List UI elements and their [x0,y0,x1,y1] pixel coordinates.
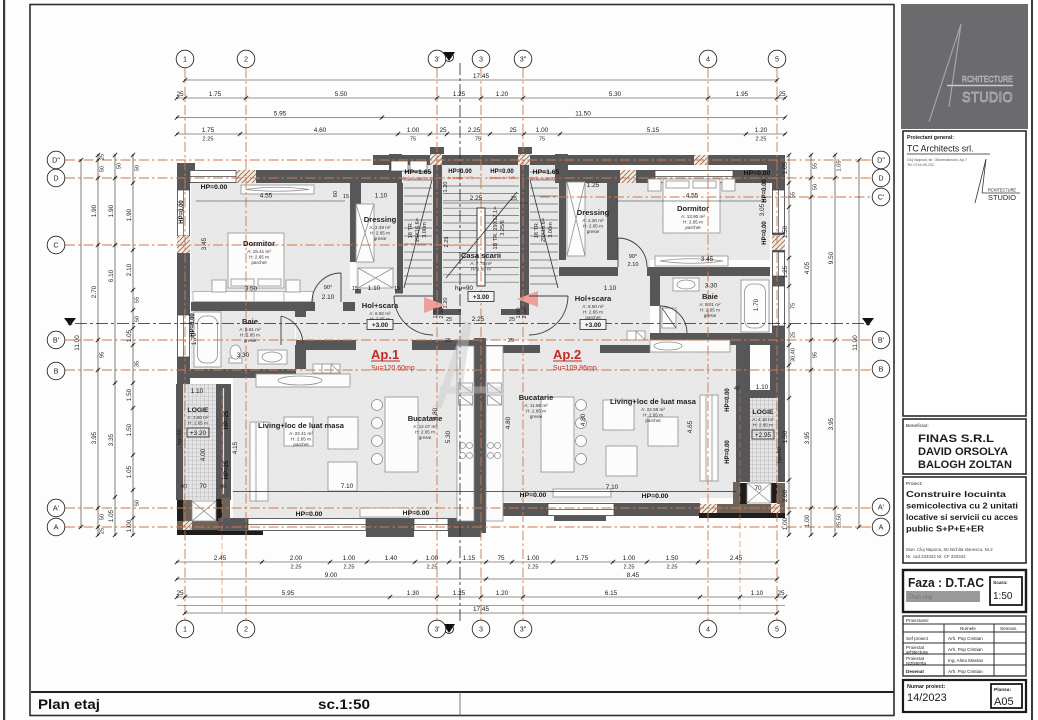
svg-text:HP=1.65: HP=1.65 [405,169,432,176]
svg-text:3': 3' [434,55,440,64]
svg-text:A: 11.86 m²: A: 11.86 m² [524,403,548,408]
svg-text:Baie: Baie [702,292,718,301]
svg-text:6.15: 6.15 [605,590,618,597]
svg-text:DAVID ORSOLYA: DAVID ORSOLYA [918,446,1008,458]
svg-text:rezistenta: rezistenta [906,661,926,666]
svg-text:4.65: 4.65 [687,420,694,433]
svg-text:60: 60 [333,191,339,197]
svg-text:50: 50 [100,166,106,172]
svg-text:2: 2 [244,625,248,634]
svg-text:1:50: 1:50 [993,591,1013,602]
svg-text:55: 55 [813,163,819,169]
svg-text:Plansa:: Plansa: [994,687,1011,693]
svg-text:1: 1 [183,625,187,634]
svg-text:3.30: 3.30 [237,352,250,359]
svg-text:25: 25 [100,528,106,534]
svg-text:H: 2.65 m: H: 2.65 m [526,409,546,414]
svg-text:9.00: 9.00 [325,572,338,579]
svg-text:3": 3" [520,55,527,64]
svg-text:HP=0.00: HP=0.00 [448,169,472,175]
svg-text:1.10: 1.10 [751,590,764,597]
svg-text:1.20: 1.20 [755,127,768,134]
svg-text:5: 5 [775,625,779,634]
svg-text:25: 25 [100,154,106,160]
svg-text:1.10: 1.10 [191,388,204,395]
svg-text:2.25: 2.25 [667,564,678,570]
svg-text:Bucatarie: Bucatarie [408,414,443,423]
svg-text:4.55: 4.55 [686,193,699,200]
svg-text:A05: A05 [994,696,1014,708]
svg-text:3': 3' [434,625,440,634]
svg-text:3.35: 3.35 [108,433,115,446]
svg-text:30,40: 30,40 [791,348,797,362]
svg-text:55: 55 [791,192,797,198]
svg-text:2.10: 2.10 [322,294,335,301]
svg-text:5.95: 5.95 [282,590,295,597]
svg-text:Arh. Pop Cristian: Arh. Pop Cristian [948,636,983,641]
svg-text:Numar proiect:: Numar proiect: [907,684,946,690]
svg-text:Beneficiar:: Beneficiar: [906,423,929,429]
svg-text:parchet: parchet [293,442,309,447]
svg-text:D": D" [52,156,60,165]
svg-text:HP=0.00: HP=0.00 [201,184,228,191]
svg-text:3.00m: 3.00m [548,222,554,238]
svg-text:50: 50 [813,184,819,190]
svg-text:25: 25 [777,590,785,597]
svg-text:1.05: 1.05 [126,329,133,342]
svg-text:14/2023: 14/2023 [907,692,947,704]
svg-text:Desenat: Desenat [906,669,924,674]
svg-text:2.00: 2.00 [290,555,303,562]
svg-text:Arh. Pop Cristian: Arh. Pop Cristian [948,669,983,674]
svg-text:A': A' [878,503,885,512]
svg-text:1.00: 1.00 [407,127,420,134]
svg-text:A: 2.30 m²: A: 2.30 m² [582,218,604,223]
svg-text:50: 50 [135,316,141,322]
svg-text:1.15: 1.15 [463,555,476,562]
svg-text:Su=109,86mp: Su=109,86mp [553,365,597,372]
svg-text:18 TR.: 18 TR. [408,221,414,238]
svg-text:25: 25 [511,196,517,202]
svg-text:2.50: 2.50 [522,308,528,319]
svg-text:H: 2.65 m: H: 2.65 m [370,231,390,236]
svg-text:1.90: 1.90 [91,204,98,217]
svg-text:B: B [879,365,884,374]
svg-text:55: 55 [135,297,141,303]
svg-text:HP=0.00: HP=0.00 [744,170,771,177]
svg-text:1.10: 1.10 [375,193,388,200]
svg-text:HP=0.00: HP=0.00 [725,440,731,464]
svg-text:A: 5.01 m²: A: 5.01 m² [699,302,721,307]
svg-text:29X16.6=: 29X16.6= [541,218,547,242]
svg-text:75: 75 [475,136,481,142]
svg-text:A: 5.61 m²: A: 5.61 m² [239,327,261,332]
svg-text:3.95: 3.95 [828,417,835,430]
svg-text:4.60: 4.60 [314,127,327,134]
svg-text:7.10: 7.10 [341,483,354,490]
svg-text:A: 8.50 m²: A: 8.50 m² [582,304,604,309]
svg-text:25: 25 [439,127,447,134]
svg-text:A: 7.75 m²: A: 7.75 m² [470,261,492,266]
svg-text:75: 75 [791,303,797,309]
svg-text:Dormitor: Dormitor [243,239,275,248]
svg-text:LOGIE: LOGIE [752,409,774,416]
svg-text:Proiectanti:: Proiectanti: [906,618,929,623]
svg-text:1.20: 1.20 [443,182,449,193]
svg-text:2.45: 2.45 [214,555,227,562]
svg-text:FINAS S.R.L: FINAS S.R.L [918,433,994,445]
svg-text:H: 2.65 m: H: 2.65 m [240,333,260,338]
svg-text:gresie: gresie [530,414,543,419]
svg-text:H: 2.65 m: H: 2.65 m [291,437,311,442]
svg-text:8.45: 8.45 [627,572,640,579]
svg-text:Bucatarie: Bucatarie [519,393,554,402]
svg-text:2.25: 2.25 [427,564,438,570]
svg-text:+3.00: +3.00 [585,322,602,329]
svg-text:1.75: 1.75 [202,127,215,134]
svg-text:25,50: 25,50 [837,514,843,528]
svg-text:1.20: 1.20 [496,590,509,597]
svg-text:4: 4 [706,625,710,634]
svg-text:50: 50 [100,514,106,520]
svg-text:sc.1:50: sc.1:50 [318,696,370,712]
svg-text:Mun. Cluj Napoca, Str.Nichita: Mun. Cluj Napoca, Str.Nichita stanescu, … [906,547,993,552]
svg-text:gresie: gresie [244,338,257,343]
svg-text:HP=0.00: HP=0.00 [296,511,323,518]
svg-text:H: 2.65 m: H: 2.65 m [753,423,773,428]
svg-text:Faza : D.T.AC: Faza : D.T.AC [908,576,984,590]
svg-text:HP=0.00: HP=0.00 [179,200,185,224]
svg-text:Numele: Numele [960,626,976,631]
svg-text:25: 25 [509,127,517,134]
svg-text:1.50: 1.50 [782,430,789,443]
svg-text:2.25: 2.25 [470,195,483,202]
svg-text:Living+loc de luat masa: Living+loc de luat masa [610,397,697,406]
svg-text:11.00: 11.00 [852,335,859,351]
svg-text:Proiectant general:: Proiectant general: [907,135,954,141]
svg-text:Dressing: Dressing [577,208,610,217]
svg-text:gresie: gresie [704,313,717,318]
svg-text:2.10: 2.10 [628,262,639,268]
svg-text:1.00: 1.00 [782,517,789,530]
svg-text:Ap.2: Ap.2 [553,347,581,362]
svg-text:B: B [54,367,59,376]
svg-text:H: 2.65 m: H: 2.65 m [583,310,603,315]
svg-text:Hol+scara: Hol+scara [575,294,612,303]
svg-text:1B TR. 29X17.1=: 1B TR. 29X17.1= [493,207,499,250]
svg-text:STUDIO: STUDIO [962,89,1013,106]
svg-text:1.00: 1.00 [343,555,356,562]
svg-text:2.70: 2.70 [91,285,98,298]
svg-text:1.50: 1.50 [126,423,133,436]
svg-text:HP=0.00: HP=0.00 [403,510,430,517]
svg-text:6.10: 6.10 [108,269,115,282]
svg-text:HP=0.00: HP=0.00 [725,388,731,412]
svg-text:2: 2 [244,55,248,64]
svg-text:+3.00: +3.00 [473,294,490,301]
svg-text:17.45: 17.45 [473,606,489,613]
svg-text:3.95: 3.95 [804,431,811,444]
svg-text:parchet: parchet [685,225,701,230]
svg-text:15: 15 [352,286,358,292]
svg-text:18 TR.: 18 TR. [534,221,540,238]
svg-text:95: 95 [813,352,819,358]
svg-text:4.05: 4.05 [804,261,811,274]
svg-text:Baie: Baie [242,317,258,326]
svg-text:5.15: 5.15 [647,127,660,134]
svg-text:4.55: 4.55 [260,193,273,200]
svg-text:90°: 90° [629,254,637,260]
svg-text:4.00: 4.00 [200,448,207,461]
svg-text:1.25: 1.25 [587,182,600,189]
svg-text:de la cota +3.25: de la cota +3.25 [402,176,435,181]
svg-text:3.95: 3.95 [91,431,98,444]
svg-text:A: 15.41 m²: A: 15.41 m² [247,249,271,254]
svg-text:2.10: 2.10 [126,263,133,276]
svg-text:3.25/6: 3.25/6 [500,220,506,236]
svg-text:de la cota +3.25: de la cota +3.25 [489,176,515,180]
svg-text:+3.00: +3.00 [372,322,389,329]
svg-text:3.00m: 3.00m [422,222,428,238]
svg-text:75: 75 [410,136,416,142]
svg-text:LOGIE: LOGIE [187,407,209,414]
svg-text:2.25: 2.25 [468,127,481,134]
svg-text:D: D [53,174,58,183]
svg-text:3.05: 3.05 [759,203,766,216]
svg-text:7.10: 7.10 [606,484,619,491]
svg-text:3: 3 [479,55,483,64]
svg-text:H: 2.65 m: H: 2.65 m [683,220,703,225]
svg-text:Tel: 0744-95-232: Tel: 0744-95-232 [907,163,934,167]
svg-text:Ing. Alina Mastan: Ing. Alina Mastan [948,658,984,663]
svg-text:+3.20: +3.20 [190,430,207,437]
svg-text:Dormitor: Dormitor [677,204,709,213]
svg-text:HP=25: HP=25 [224,460,230,479]
svg-text:arhitectura: arhitectura [906,650,928,655]
svg-text:hp=90: hp=90 [177,429,183,445]
svg-text:A: 22.41 m²: A: 22.41 m² [289,431,313,436]
svg-text:3.30: 3.30 [705,283,718,290]
svg-text:Living+loc de luat masa: Living+loc de luat masa [258,421,345,430]
svg-text:15: 15 [343,194,349,200]
svg-text:11.50: 11.50 [575,111,591,118]
svg-text:1.00: 1.00 [126,519,133,532]
svg-text:25: 25 [791,332,797,338]
svg-text:Scara:: Scara: [993,580,1008,586]
svg-text:1.00: 1.00 [623,555,636,562]
svg-text:40: 40 [220,484,226,490]
svg-text:HP=25: HP=25 [224,410,230,429]
svg-text:C: C [53,241,58,250]
svg-text:3: 3 [479,625,483,634]
svg-text:Plan etaj: Plan etaj [909,595,932,601]
svg-text:A: 4.10 m²: A: 4.10 m² [752,417,774,422]
svg-text:3.50: 3.50 [245,286,258,293]
svg-text:Proiect:: Proiect: [906,481,922,487]
svg-text:1.05: 1.05 [108,509,115,522]
svg-text:35: 35 [135,361,141,367]
svg-text:5.50: 5.50 [335,91,348,98]
svg-text:3.45: 3.45 [701,256,714,263]
svg-text:HP=0.00: HP=0.00 [520,492,547,499]
svg-text:1: 1 [183,55,187,64]
svg-text:2.25: 2.25 [528,564,539,570]
svg-text:HP=0.00: HP=0.00 [762,221,768,245]
svg-text:Su=120,60mp: Su=120,60mp [371,365,415,372]
svg-text:RCHITECTURE: RCHITECTURE [988,188,1016,193]
svg-text:H: 2.65 m: H: 2.65 m [415,430,435,435]
svg-text:BALOGH ZOLTAN: BALOGH ZOLTAN [918,459,1012,471]
svg-text:semicolectiva cu 2 unitati: semicolectiva cu 2 unitati [906,501,1018,511]
svg-text:5: 5 [775,55,779,64]
svg-text:Sef proiect: Sef proiect [906,636,929,641]
svg-text:2.25: 2.25 [291,564,302,570]
svg-text:Casa scarii: Casa scarii [461,251,501,260]
svg-text:D": D" [877,156,885,165]
svg-text:A: 2.49 m²: A: 2.49 m² [369,225,391,230]
svg-text:4: 4 [706,55,710,64]
svg-text:1.40: 1.40 [385,555,398,562]
svg-text:2.25: 2.25 [444,237,450,248]
svg-text:1.30: 1.30 [407,590,420,597]
svg-text:17.45: 17.45 [473,73,489,80]
svg-text:25: 25 [445,338,451,344]
svg-text:4.15: 4.15 [232,441,239,454]
svg-text:HP=0.00: HP=0.00 [762,179,768,203]
svg-text:hp=90: hp=90 [777,447,783,463]
svg-text:Construire locuinta: Construire locuinta [906,489,1006,499]
svg-text:90°: 90° [324,285,332,291]
svg-text:2.25: 2.25 [472,316,485,323]
svg-text:1.00: 1.00 [804,514,811,527]
svg-text:75: 75 [497,555,505,562]
svg-text:40: 40 [734,386,740,392]
svg-text:Cluj Napoca, str. Observatorul: Cluj Napoca, str. Observatorului, Ap.7 [907,158,967,162]
svg-text:9.50: 9.50 [828,251,835,264]
svg-text:1.00: 1.00 [536,127,549,134]
svg-text:D: D [878,174,883,183]
svg-text:H/:2.65 m: H/:2.65 m [471,267,491,272]
svg-text:HP=1.65: HP=1.65 [533,169,560,176]
svg-text:A: 6.92 m²: A: 6.92 m² [369,311,391,316]
svg-text:1.20: 1.20 [443,298,449,309]
svg-text:5.30: 5.30 [609,91,622,98]
svg-text:parchet: parchet [645,418,661,423]
svg-text:2.25: 2.25 [624,564,635,570]
svg-text:50: 50 [135,500,141,506]
svg-text:70: 70 [199,483,207,490]
svg-text:parchet: parchet [251,260,267,265]
svg-text:2.25: 2.25 [344,564,355,570]
svg-text:25: 25 [778,91,786,98]
svg-text:25: 25 [176,590,184,597]
svg-text:1.25: 1.25 [453,590,466,597]
svg-text:H: 2.65 m: H: 2.65 m [249,255,269,260]
svg-text:HP=0.00: HP=0.00 [490,169,514,175]
svg-text:Ap.1: Ap.1 [371,347,399,362]
svg-text:2.00: 2.00 [782,489,789,502]
svg-text:3.45: 3.45 [201,237,208,250]
svg-text:2.25: 2.25 [756,136,767,142]
svg-text:gresie: gresie [587,229,600,234]
svg-text:B': B' [878,336,885,345]
svg-text:A: 3.60 m²: A: 3.60 m² [187,415,209,420]
svg-text:STUDIO: STUDIO [988,195,1017,202]
svg-text:1.90: 1.90 [126,208,133,221]
svg-text:A': A' [53,504,60,513]
svg-text:70: 70 [754,485,762,492]
svg-text:Plan etaj: Plan etaj [38,696,100,712]
svg-text:A: A [866,318,871,327]
svg-text:1.05: 1.05 [126,465,133,478]
svg-text:25: 25 [509,317,515,323]
svg-text:1.50: 1.50 [666,555,679,562]
svg-text:11.00: 11.00 [74,335,81,351]
svg-text:50: 50 [135,165,141,171]
svg-text:1.00: 1.00 [426,555,439,562]
svg-text:H: 2.65 m: H: 2.65 m [700,308,720,313]
svg-text:hp=90: hp=90 [455,285,473,292]
svg-text:1.90: 1.90 [108,204,115,217]
svg-text:A: A [68,318,73,327]
svg-text:Nr. cad.333342 Nr. CF 333342: Nr. cad.333342 Nr. CF 333342 [906,554,966,559]
svg-text:C': C' [878,193,885,202]
svg-text:H: 2.65 m: H: 2.65 m [643,413,663,418]
svg-text:29X16.6=: 29X16.6= [415,218,421,242]
svg-text:de la cota +3.25: de la cota +3.25 [530,176,563,181]
svg-text:1.50: 1.50 [126,388,133,401]
svg-text:1.10: 1.10 [368,285,381,292]
svg-text:1.75: 1.75 [209,91,222,98]
svg-text:Arh. Pop Cristian: Arh. Pop Cristian [948,647,983,652]
svg-text:HP=0.00: HP=0.00 [642,493,669,500]
svg-text:15: 15 [394,286,400,292]
svg-text:1.75: 1.75 [576,555,589,562]
svg-text:1.25: 1.25 [453,91,466,98]
svg-text:gresie: gresie [374,236,387,241]
svg-text:95: 95 [100,352,106,358]
svg-text:+2.95: +2.95 [755,432,772,439]
svg-text:1.05: 1.05 [782,161,789,174]
svg-text:de la cota +1.35: de la cota +1.35 [447,176,473,180]
svg-text:3": 3" [520,625,527,634]
svg-text:Hol+scara: Hol+scara [362,301,399,310]
svg-text:locative si servicii cu acces: locative si servicii cu acces [906,512,1018,522]
svg-text:1.10: 1.10 [756,384,769,391]
svg-text:40: 40 [181,484,187,490]
svg-text:4.80: 4.80 [580,413,587,426]
svg-text:1.50: 1.50 [782,225,789,238]
svg-text:5.30: 5.30 [445,430,452,443]
svg-text:1.25: 1.25 [782,265,789,278]
svg-text:2.25: 2.25 [203,136,214,142]
svg-text:gresie: gresie [419,435,432,440]
svg-text:75: 75 [539,136,545,142]
svg-text:1.05: 1.05 [837,161,843,172]
svg-text:5.95: 5.95 [274,111,287,118]
svg-text:Semnat.: Semnat. [1000,626,1017,631]
svg-text:H: 2.65 m: H: 2.65 m [188,421,208,426]
svg-text:2.45: 2.45 [730,555,743,562]
svg-text:Dressing: Dressing [364,215,397,224]
svg-text:25: 25 [176,91,184,98]
svg-text:4.80: 4.80 [505,416,512,429]
svg-text:25: 25 [508,338,514,344]
svg-text:B': B' [53,336,60,345]
svg-text:25: 25 [446,317,452,323]
svg-text:RCHITECTURE: RCHITECTURE [962,75,1013,84]
svg-text:A: 12.07 m²: A: 12.07 m² [413,424,437,429]
